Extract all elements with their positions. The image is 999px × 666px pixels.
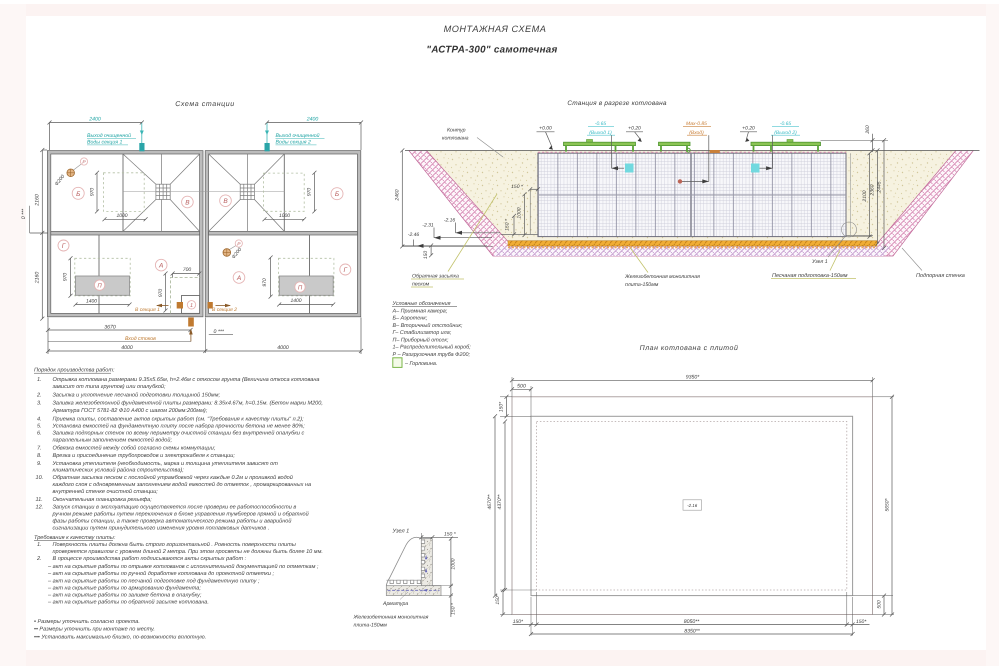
svg-text:4370**: 4370** [497, 493, 503, 509]
svg-text:2400: 2400 [88, 117, 101, 123]
svg-text:-2.16: -2.16 [687, 503, 698, 508]
svg-text:Б– Аэротенк;: Б– Аэротенк; [393, 316, 428, 322]
svg-text:Г: Г [344, 267, 348, 274]
svg-text:Узел 1: Узел 1 [812, 259, 828, 265]
svg-text:В секция 2: В секция 2 [212, 307, 237, 313]
svg-text:– Горловина.: – Горловина. [404, 361, 437, 367]
svg-text:9350*: 9350* [686, 374, 701, 380]
svg-text:Порядок производства работ:: Порядок производства работ: [34, 367, 115, 374]
svg-text:-2.16: -2.16 [444, 217, 456, 223]
svg-text:4000: 4000 [277, 345, 289, 351]
svg-text:-0.65: -0.65 [780, 121, 792, 127]
svg-text:В секция 1: В секция 1 [135, 307, 160, 313]
svg-text:параллельным заполнением емкос: параллельным заполнением емкостей водой; [53, 437, 173, 444]
svg-text:1400: 1400 [86, 299, 97, 305]
svg-text:Обвязка емкостей между собой с: Обвязка емкостей между собой согласно сх… [53, 444, 216, 451]
svg-text:-0.65: -0.65 [595, 121, 607, 127]
svg-text:11.: 11. [36, 497, 43, 503]
svg-text:"АСТРА-300" самотечная: "АСТРА-300" самотечная [426, 45, 557, 56]
svg-text:1: 1 [190, 303, 193, 309]
svg-text:150*: 150* [495, 593, 501, 604]
svg-text:Арматура ГОСТ 5781-82 Ф10 А400: Арматура ГОСТ 5781-82 Ф10 А400 с шагом 2… [52, 407, 208, 414]
svg-text:План котлована с плитой: План котлована с плитой [640, 344, 739, 352]
svg-text:Приемка плиты, составление акт: Приемка плиты, составление актов скрытых… [53, 415, 305, 422]
svg-text:Установка емкостей на фундамен: Установка емкостей на фундаментную плиту… [52, 423, 306, 430]
svg-text:– акт на скрытые работы по руч: – акт на скрытые работы по ручной дорабо… [47, 570, 274, 577]
svg-text:500: 500 [517, 384, 526, 390]
svg-text:В: В [223, 198, 228, 205]
svg-text:– акт на скрытые работы по отр: – акт на скрытые работы по отрывке котло… [47, 563, 319, 570]
svg-text:2400: 2400 [306, 117, 319, 123]
svg-text:150: 150 [423, 251, 429, 260]
svg-text:– акт на скрытые работы по пес: – акт на скрытые работы по песчаной подг… [47, 578, 260, 585]
svg-text:2.: 2. [36, 393, 42, 399]
svg-text:5.: 5. [37, 424, 42, 430]
svg-text:970: 970 [307, 188, 313, 197]
svg-text:Засыпка и уплотнение песчаной: Засыпка и уплотнение песчаной подготовки… [53, 392, 221, 399]
svg-text:плита-150мм: плита-150мм [354, 623, 388, 629]
svg-text:2160: 2160 [35, 272, 41, 285]
svg-text:4670**: 4670** [487, 493, 493, 509]
svg-text:150 *: 150 * [444, 532, 457, 538]
svg-text:А: А [236, 275, 241, 282]
svg-text:Окончательная планировка релье: Окончательная планировка рельефа; [53, 496, 153, 503]
svg-text:150*: 150* [499, 401, 505, 412]
svg-text:6.: 6. [37, 431, 42, 437]
svg-text:4.: 4. [37, 416, 42, 422]
svg-text:– акт на скрытые работы по зал: – акт на скрытые работы по заливке бетон… [47, 592, 202, 599]
svg-text:Заливка подпорных стенок по вс: Заливка подпорных стенок по всему периме… [53, 430, 305, 437]
svg-text:970: 970 [262, 278, 268, 287]
svg-text:внутренней стенке очистной ста: внутренней стенке очистной станции; [53, 488, 159, 495]
svg-text:Б: Б [76, 191, 80, 198]
svg-text:Установка утеплителя (необходи: Установка утеплителя (необходимость, мар… [52, 460, 279, 467]
svg-text:0 ***: 0 *** [21, 208, 27, 219]
svg-text:+0.00: +0.00 [539, 126, 552, 132]
svg-text:Р – Разгрузочная труба Ф200;: Р – Разгрузочная труба Ф200; [393, 352, 471, 358]
svg-text:1000: 1000 [116, 213, 127, 219]
svg-text:5650*: 5650* [885, 497, 891, 511]
svg-text:700: 700 [183, 267, 192, 273]
svg-text:1.: 1. [37, 542, 42, 548]
svg-text:1.: 1. [37, 377, 42, 383]
svg-text:8050**: 8050** [684, 619, 701, 625]
svg-text:Б: Б [335, 191, 339, 198]
svg-text:Железобетонная монолитная: Железобетонная монолитная [624, 274, 700, 280]
svg-text:3.: 3. [37, 400, 42, 406]
svg-text:проверяется правилом с уровнем: проверяется правилом с уровнем длиной 2 … [53, 548, 323, 555]
svg-text:Железобетонная монолитная: Железобетонная монолитная [353, 615, 429, 621]
svg-text:плита-150мм: плита-150мм [625, 282, 659, 288]
svg-text:500: 500 [877, 600, 883, 609]
svg-text:8350**: 8350** [684, 628, 701, 634]
svg-text:Обратная засыпка песком с посл: Обратная засыпка песком с послойной утра… [53, 474, 293, 481]
svg-text:зависит от типа грунтов) или о: зависит от типа грунтов) или опалубкой; [52, 383, 166, 390]
svg-text:150 *: 150 * [505, 218, 511, 231]
svg-text:П– Приборный отсек;: П– Приборный отсек; [393, 338, 449, 344]
svg-text:+0.20: +0.20 [742, 126, 755, 132]
svg-text:970: 970 [63, 273, 69, 282]
svg-text:Врезка и присоединение трубопр: Врезка и присоединение трубопроводов и э… [53, 452, 236, 459]
svg-text:10.: 10. [36, 475, 44, 481]
svg-text:2360: 2360 [870, 184, 876, 196]
svg-text:сигнализации путем принудитель: сигнализации путем принудительного измен… [53, 525, 270, 532]
svg-text:Контур: Контур [447, 128, 466, 134]
svg-text:Арматура: Арматура [382, 601, 408, 607]
svg-text:2460: 2460 [395, 189, 401, 201]
svg-text:4000: 4000 [121, 345, 133, 351]
svg-text:Г: Г [62, 243, 66, 250]
svg-text:1– Распределительный короб;: 1– Распределительный короб; [393, 345, 472, 351]
svg-text:П: П [97, 283, 102, 290]
svg-text:Схема станции: Схема станции [175, 101, 235, 108]
svg-text:В– Вторичный отстойник;: В– Вторичный отстойник; [393, 323, 463, 329]
svg-text:Запуск станции в эксплуатацию: Запуск станции в эксплуатацию осуществля… [53, 504, 297, 511]
svg-text:1000: 1000 [517, 207, 523, 218]
svg-text:-2.31: -2.31 [422, 222, 434, 228]
svg-text:Мах-0.85: Мах-0.85 [686, 121, 707, 127]
svg-text:7.: 7. [37, 445, 42, 451]
svg-text:Поверхность плиты должна быть: Поверхность плиты должна быть строго гор… [53, 541, 296, 548]
svg-text:2.: 2. [36, 556, 42, 562]
svg-text:2160: 2160 [35, 194, 41, 207]
svg-text:А: А [158, 263, 163, 270]
svg-text:Требования к качеству плиты:: Требования к качеству плиты: [34, 534, 116, 541]
svg-text:2445: 2445 [877, 181, 883, 193]
svg-text:-2.46: -2.46 [408, 232, 420, 238]
svg-text:12.: 12. [36, 505, 44, 511]
svg-text:150 *: 150 * [451, 602, 457, 615]
svg-text:1400: 1400 [290, 298, 301, 304]
svg-text:+0.20: +0.20 [628, 126, 641, 132]
svg-text:150 *: 150 * [511, 184, 524, 190]
svg-text:Отрывка котлована размерами 9.: Отрывка котлована размерами 9.35х5.65м, … [53, 376, 320, 383]
svg-text:970: 970 [90, 188, 96, 197]
svg-text:ручном режиме работы путем пер: ручном режиме работы путем переключения … [52, 510, 309, 517]
svg-text:Условные обозначения: Условные обозначения [392, 301, 451, 307]
svg-text:А– Приемная камера;: А– Приемная камера; [392, 308, 448, 314]
svg-text:150*: 150* [856, 619, 867, 625]
svg-text:П: П [298, 285, 303, 292]
svg-text:В процессе производства работ: В процессе производства работ подписываю… [53, 555, 247, 562]
svg-text:0 ***: 0 *** [214, 329, 225, 335]
svg-text:МОНТАЖНАЯ СХЕМА: МОНТАЖНАЯ СХЕМА [444, 24, 547, 34]
svg-text:климатических условий района с: климатических условий района строительст… [53, 466, 185, 473]
svg-text:каждого слоя с одновременным з: каждого слоя с одновременным заполнением… [53, 481, 312, 488]
svg-text:8.: 8. [37, 453, 42, 459]
svg-text:– акт на скрытые работы по арм: – акт на скрытые работы по армированию ф… [47, 585, 201, 592]
svg-text:150*: 150* [513, 619, 524, 625]
svg-text:260: 260 [865, 125, 871, 135]
svg-text:фазы работы станции, а также п: фазы работы станции, а также проверка ав… [53, 518, 292, 525]
svg-text:Станция в разрезе котлована: Станция в разрезе котлована [567, 100, 667, 107]
svg-text:Заливка железобетонной фундаме: Заливка железобетонной фундаментной плит… [53, 399, 323, 406]
svg-text:котлована: котлована [442, 136, 469, 142]
svg-text:Вход стоков: Вход стоков [125, 336, 156, 342]
svg-text:– акт на скрытые работы по обр: – акт на скрытые работы по обратной засы… [47, 599, 209, 606]
svg-text:Г– Стабилизатор ила;: Г– Стабилизатор ила; [393, 330, 452, 336]
svg-text:Подпорная стенка: Подпорная стенка [916, 273, 965, 279]
svg-text:3670: 3670 [104, 324, 116, 330]
svg-text:1000: 1000 [279, 213, 290, 219]
svg-text:970: 970 [158, 289, 164, 298]
svg-text:Узел 1: Узел 1 [392, 529, 410, 535]
svg-text:•• Размеры уточнить при монта: •• Размеры уточнить при монтаже по месту… [34, 627, 155, 633]
svg-text:••• Установить максимально бл: ••• Установить максимально близко, по-во… [34, 633, 206, 640]
svg-text:9.: 9. [37, 461, 42, 467]
svg-text:В: В [185, 200, 190, 207]
svg-text:• Размеры уточнить согласно п: • Размеры уточнить согласно проекта. [34, 619, 140, 625]
svg-text:2100: 2100 [862, 190, 868, 202]
svg-text:1000: 1000 [451, 558, 457, 569]
